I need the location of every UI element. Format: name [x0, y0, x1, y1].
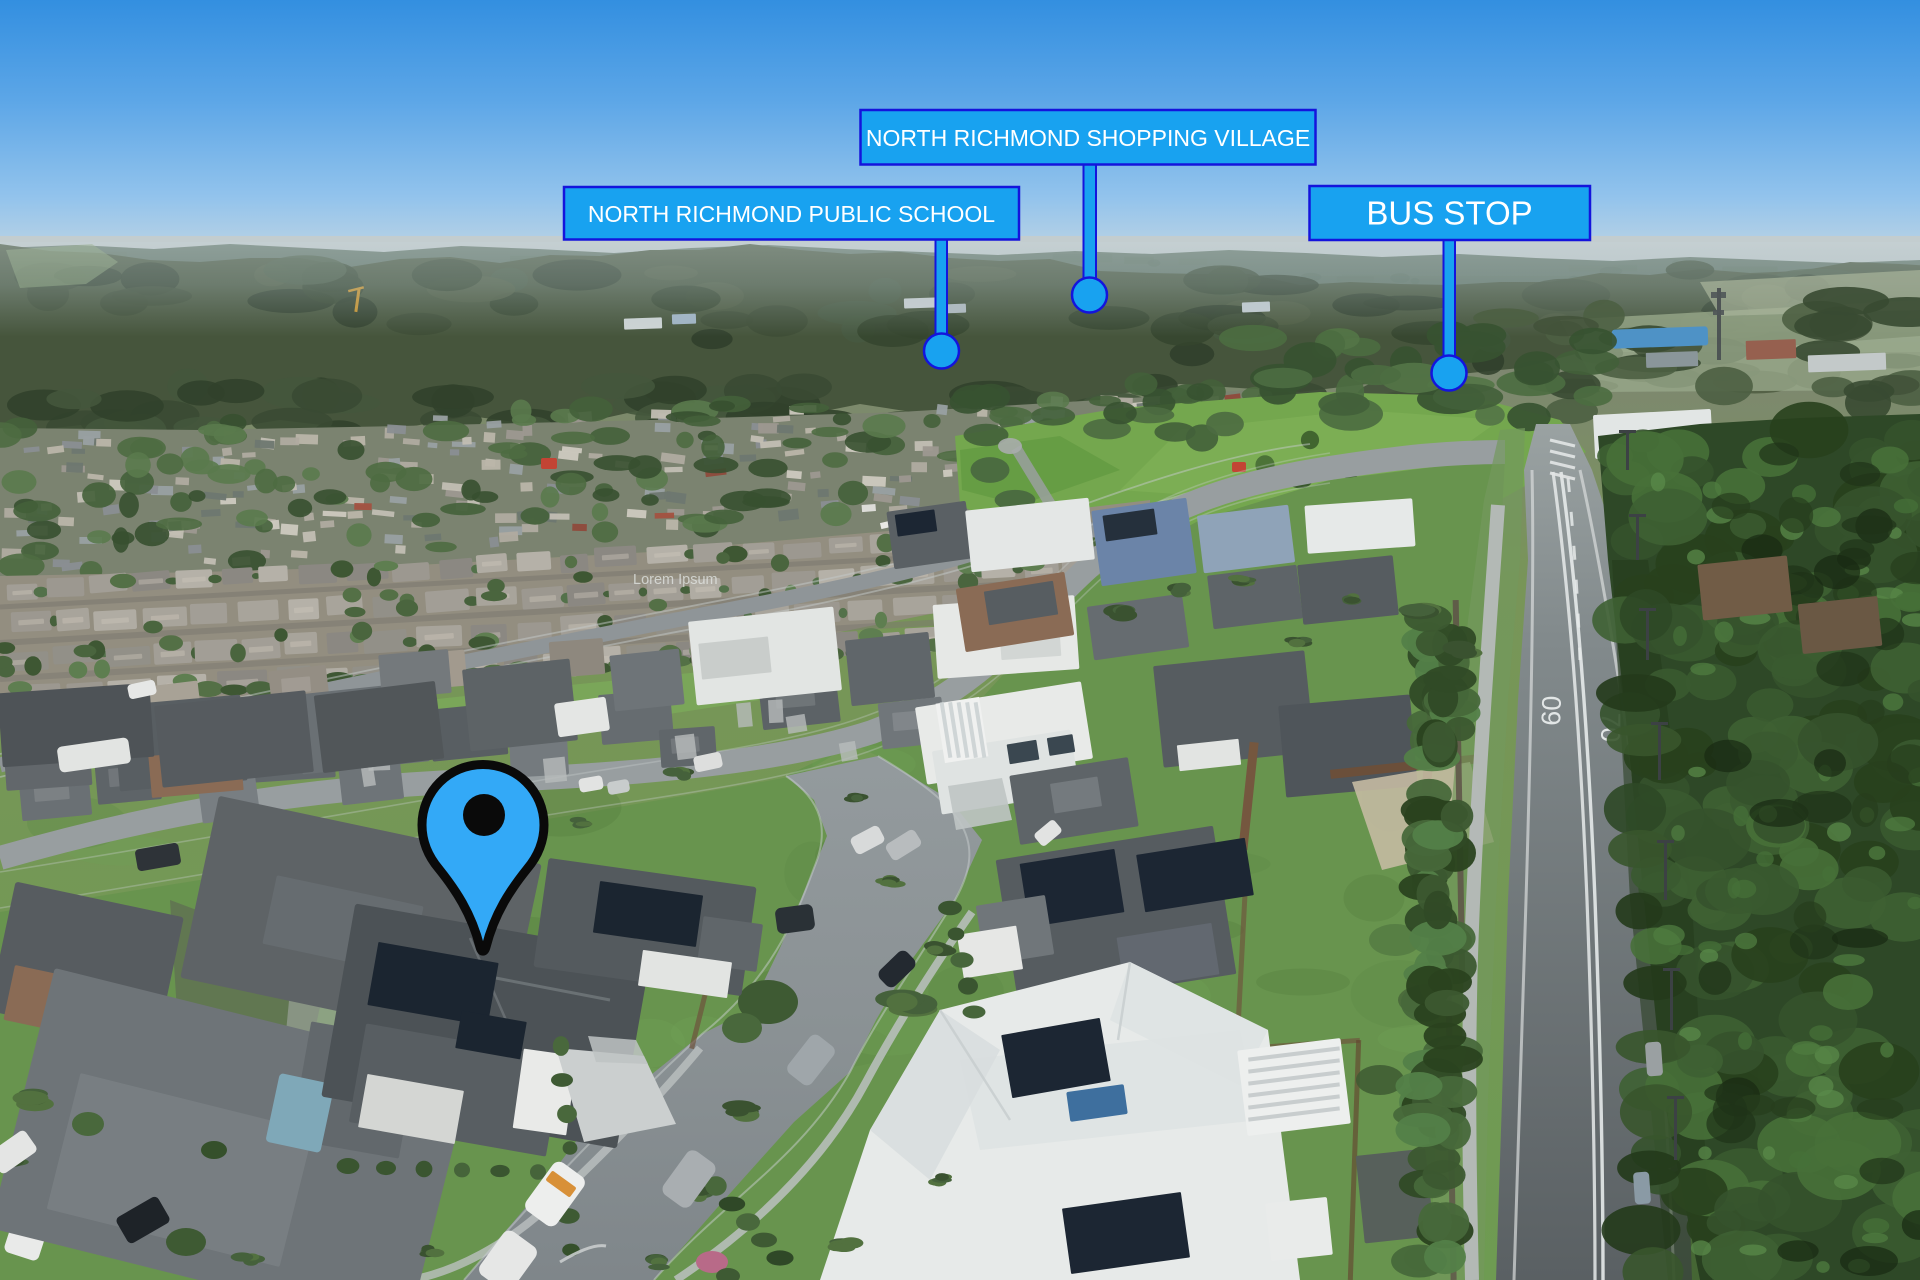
svg-text:60: 60	[1536, 695, 1567, 726]
svg-text:NORTH RICHMOND SHOPPING VILLAG: NORTH RICHMOND SHOPPING VILLAGE	[866, 125, 1310, 151]
svg-text:Lorem Ipsum: Lorem Ipsum	[633, 572, 718, 588]
svg-text:NORTH RICHMOND PUBLIC SCHOOL: NORTH RICHMOND PUBLIC SCHOOL	[588, 201, 995, 227]
svg-text:BUS STOP: BUS STOP	[1366, 195, 1532, 232]
